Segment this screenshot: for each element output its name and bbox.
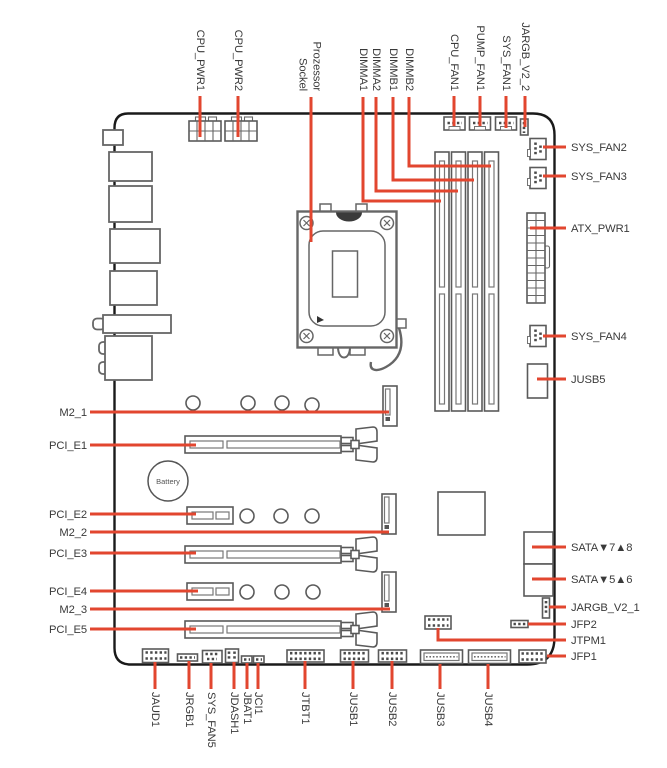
label-cpu-pwr1: CPU_PWR1 <box>194 30 206 91</box>
dimm-slot-b1 <box>468 152 482 411</box>
label-sata-7-8: SATA▼7▲8 <box>571 542 632 554</box>
label-jrgb1: JRGB1 <box>183 692 195 728</box>
jusb4-connector <box>469 650 511 664</box>
jci1-connector <box>254 656 265 663</box>
top-labels: CPU_PWR1 CPU_PWR2 Prozessor Sockel DIMMA… <box>194 22 531 91</box>
left-labels: M2_1 PCI_E1 PCI_E2 M2_2 PCI_E3 PCI_E4 M2… <box>49 407 87 636</box>
jdash1-connector <box>226 649 239 663</box>
label-jusb2: JUSB2 <box>386 692 398 726</box>
jusb3-connector <box>421 650 463 664</box>
label-m2-2: M2_2 <box>59 527 87 539</box>
label-jci1: JCI1 <box>252 692 264 715</box>
label-jdash1: JDASH1 <box>228 692 240 734</box>
label-jargb-v2-2: JARGB_V2_2 <box>519 22 531 91</box>
jrgb1-connector <box>178 654 198 661</box>
battery-label: Battery <box>156 477 180 486</box>
label-pci-e2: PCI_E2 <box>49 509 87 521</box>
sys-fan2-connector <box>528 139 547 160</box>
label-m2-3: M2_3 <box>59 604 87 616</box>
motherboard-overview-diagram: Battery <box>0 0 667 768</box>
socket-screw <box>300 330 313 343</box>
dimm-slot-b2 <box>485 152 499 411</box>
label-jtpm1: JTPM1 <box>571 635 606 647</box>
label-pci-e4: PCI_E4 <box>49 586 87 598</box>
sys-fan5-connector <box>203 651 223 664</box>
jfp2-connector <box>511 621 528 628</box>
label-jbat1: JBAT1 <box>241 692 253 724</box>
label-sys-fan2: SYS_FAN2 <box>571 142 627 154</box>
label-sys-fan3: SYS_FAN3 <box>571 171 627 183</box>
label-sata-5-6: SATA▼5▲6 <box>571 574 632 586</box>
label-pci-e1: PCI_E1 <box>49 440 87 452</box>
diagram-canvas: Battery <box>0 0 667 768</box>
label-jfp1: JFP1 <box>571 651 597 663</box>
label-cpu-pwr2: CPU_PWR2 <box>232 30 244 91</box>
chipset <box>438 492 485 535</box>
sys-fan3-connector <box>528 168 547 189</box>
label-sys-fan1: SYS_FAN1 <box>500 35 512 91</box>
m2-3-connector <box>382 572 396 612</box>
jtbt1-connector <box>287 650 324 662</box>
label-m2-1: M2_1 <box>59 407 87 419</box>
label-jusb4: JUSB4 <box>482 692 494 726</box>
label-pci-e5: PCI_E5 <box>49 624 87 636</box>
jusb1-connector <box>341 650 369 662</box>
label-jargb-v2-1: JARGB_V2_1 <box>571 602 640 614</box>
cpu-pwr1-connector <box>189 117 221 141</box>
jusb5-connector <box>528 364 548 398</box>
label-socket-line1: Prozessor <box>311 42 323 92</box>
label-dimma1: DIMMA1 <box>357 48 369 91</box>
label-jusb1: JUSB1 <box>347 692 359 726</box>
jaud1-connector <box>143 649 169 663</box>
bottom-labels: JAUD1 JRGB1 SYS_FAN5 JDASH1 JBAT1 JCI1 J… <box>149 692 494 748</box>
label-pci-e3: PCI_E3 <box>49 548 87 560</box>
right-labels: SYS_FAN2 SYS_FAN3 ATX_PWR1 SYS_FAN4 JUSB… <box>571 142 640 663</box>
label-pump-fan1: PUMP_FAN1 <box>474 25 486 91</box>
battery: Battery <box>148 461 188 501</box>
label-sys-fan4: SYS_FAN4 <box>571 331 627 343</box>
jfp1-connector <box>519 650 546 663</box>
jbat1-connector <box>242 656 253 663</box>
label-dimmb1: DIMMB1 <box>387 48 399 91</box>
label-sys-fan5: SYS_FAN5 <box>205 692 217 748</box>
label-dimma2: DIMMA2 <box>370 48 382 91</box>
label-jfp2: JFP2 <box>571 619 597 631</box>
socket-screw <box>381 217 394 230</box>
m2-1-connector <box>383 386 397 426</box>
label-jtbt1: JTBT1 <box>299 692 311 724</box>
label-jusb3: JUSB3 <box>434 692 446 726</box>
label-atx-pwr1: ATX_PWR1 <box>571 223 630 235</box>
jargb-v2-1-connector <box>543 598 550 618</box>
label-cpu-fan1: CPU_FAN1 <box>448 34 460 91</box>
jtpm1-connector <box>425 616 451 629</box>
label-socket-line2: Sockel <box>297 58 309 91</box>
socket-screw <box>381 330 394 343</box>
label-jaud1: JAUD1 <box>149 692 161 727</box>
jusb2-connector <box>379 650 407 662</box>
cpu-socket <box>298 204 407 370</box>
cpu-pwr2-connector <box>225 117 257 141</box>
label-dimmb2: DIMMB2 <box>403 48 415 91</box>
m2-2-connector <box>382 494 396 534</box>
label-jusb5: JUSB5 <box>571 374 605 386</box>
